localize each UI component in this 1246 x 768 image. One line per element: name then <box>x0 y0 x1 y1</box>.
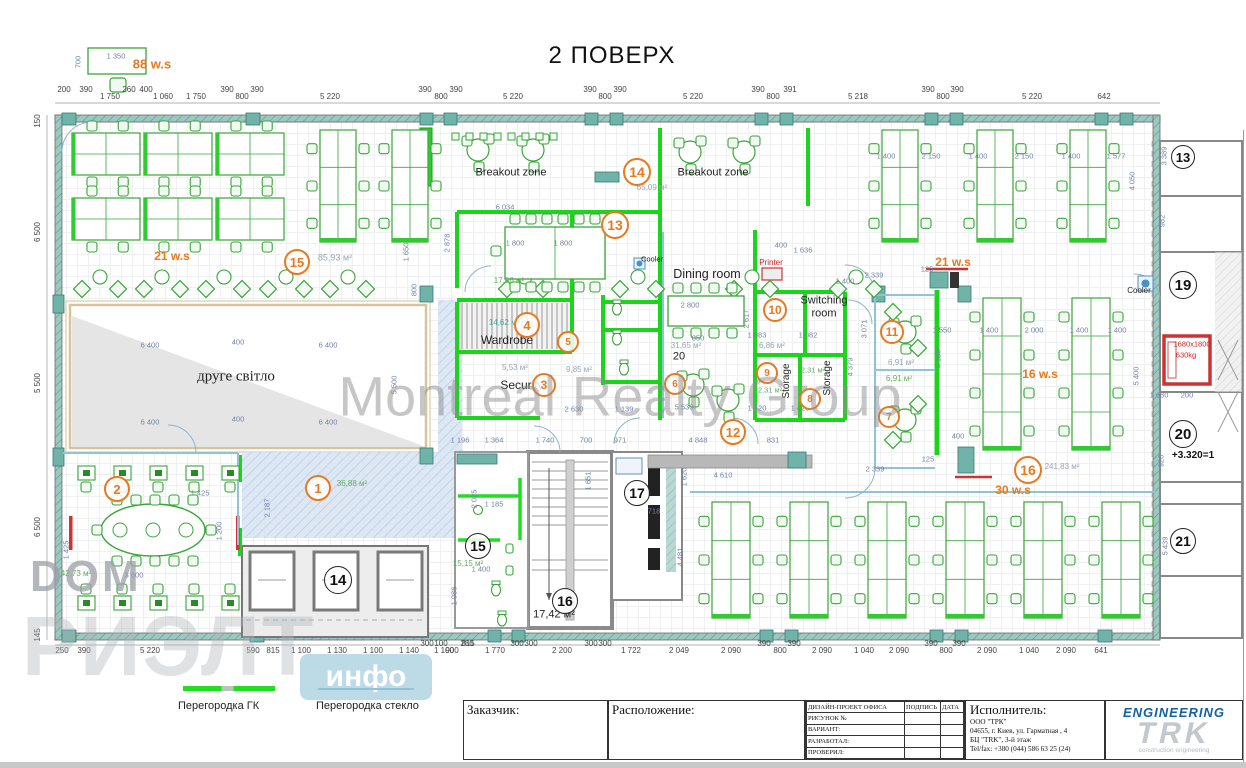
red-strip-left <box>69 516 73 550</box>
stamp-row-label: ПРОВЕРИЛ: <box>807 747 905 758</box>
legend-line-partition-gk <box>183 686 275 691</box>
core-stairs <box>528 452 612 628</box>
right-wing-rooms <box>1152 141 1242 638</box>
sign-label: ПОДПИСЬ <box>905 702 941 713</box>
executor-label: Исполнитель: <box>970 702 1100 718</box>
drawing-title: 2 ПОВЕРХ <box>549 42 676 70</box>
legend-line-partition-glass <box>318 688 414 690</box>
trk-logo: ENGINEERING TRK construction engineering <box>1105 700 1243 760</box>
stamp-row-label: РАЗРАБОТАЛ: <box>807 736 905 747</box>
legend-label-glass: Перегородка стекло <box>316 700 419 712</box>
room-17-server <box>612 452 682 600</box>
location-label: Расположение: <box>609 701 804 719</box>
wardrobe-racks <box>460 303 570 349</box>
sheet-right-border <box>1243 130 1244 762</box>
titleblock-executor: Исполнитель: ООО "ТРК" 04655, г. Киев, у… <box>965 700 1105 760</box>
desk-legend-symbol <box>88 48 146 92</box>
titleblock-location: Расположение: <box>608 700 805 760</box>
sheet-bottom-edge <box>0 762 1246 768</box>
stamp-row-label: ВАРИАНТ: <box>807 724 905 735</box>
stamp-cell[interactable] <box>905 724 941 735</box>
project-label: ДИЗАЙН-ПРОЕКТ ОФИСА <box>807 702 905 713</box>
customer-label: Заказчик: <box>464 701 607 719</box>
executor-line: ООО "ТРК" <box>970 718 1100 727</box>
stamp-cell[interactable] <box>905 713 941 724</box>
executor-line: Tel/fax: +380 (044) 586 63 25 (24) <box>970 745 1100 754</box>
legend-label-gk: Перегородка ГК <box>178 700 259 712</box>
logo-trk-text: TRK <box>1103 720 1245 747</box>
stamp-cell[interactable] <box>905 736 941 747</box>
stamp-cell[interactable] <box>941 747 964 758</box>
stamp-row-label: РИСУНОК № <box>807 713 905 724</box>
watermark-center: Montreal Realty Group <box>338 364 901 429</box>
date-label: ДАТА <box>941 702 964 713</box>
titleblock-customer: Заказчик: <box>463 700 608 760</box>
stamp-cell[interactable] <box>905 747 941 758</box>
stamp-cell[interactable] <box>941 724 964 735</box>
watermark-dom: DOM <box>30 552 142 602</box>
titleblock-stamp: ДИЗАЙН-ПРОЕКТ ОФИСА ПОДПИСЬ ДАТА РИСУНОК… <box>805 700 965 760</box>
drawing-sheet: 88 w.s21 w.s85,93 м²Breakout zoneBreakou… <box>0 0 1246 768</box>
stamp-cell[interactable] <box>941 713 964 724</box>
legend: Перегородка ГК Перегородка стекло <box>178 682 438 716</box>
executor-line: БЦ "TRK", 3-й этаж <box>970 736 1100 745</box>
core-wc <box>455 452 528 628</box>
executor-line: 04655, г. Киев, ул. Гарматная , 4 <box>970 727 1100 736</box>
watermark-big: РИЭЛТ <box>22 598 315 695</box>
stamp-cell[interactable] <box>941 736 964 747</box>
